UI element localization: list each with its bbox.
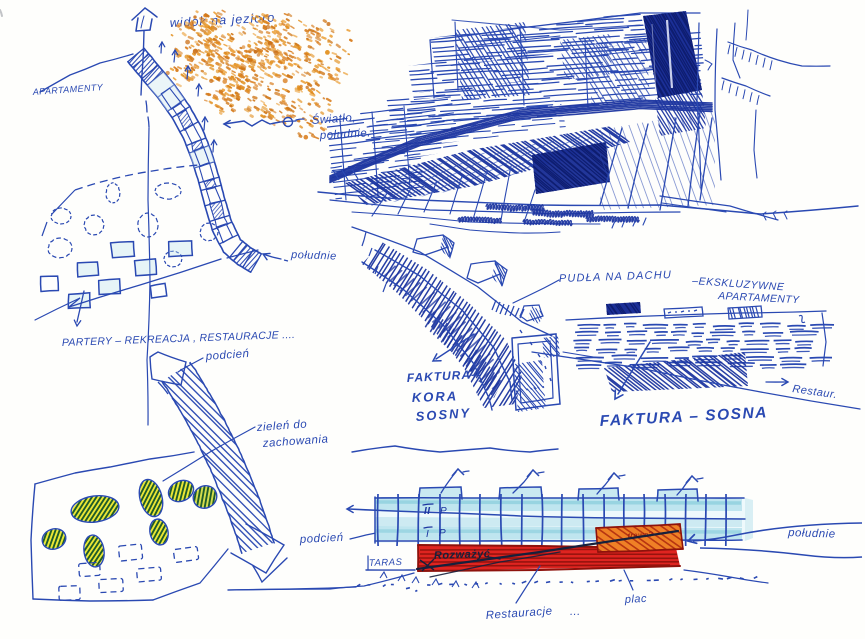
svg-text:TARAS: TARAS: [369, 557, 403, 569]
svg-text:plac: plac: [624, 593, 648, 606]
svg-text:P: P: [439, 528, 446, 539]
svg-text:południe: południe: [290, 249, 337, 263]
svg-text:I: I: [426, 529, 429, 540]
svg-text:...: ...: [570, 606, 581, 618]
svg-text:KORA: KORA: [412, 388, 459, 405]
svg-text:P: P: [440, 506, 447, 517]
svg-text:południe: południe: [787, 527, 836, 541]
svg-text:II: II: [424, 506, 431, 517]
svg-text:podcień: podcień: [299, 532, 344, 546]
